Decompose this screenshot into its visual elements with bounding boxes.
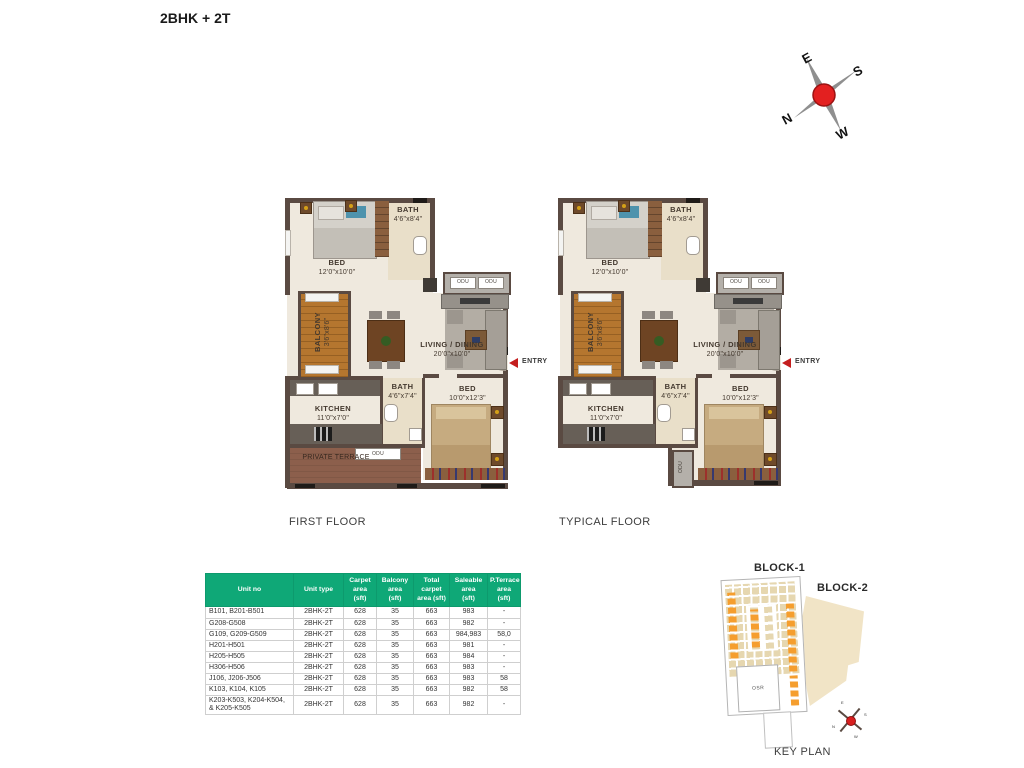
room-dim: 12'0"x10'0" — [592, 269, 629, 276]
living-label: LIVING / DINING 20'0"x10'0" — [403, 340, 501, 360]
wall — [457, 374, 508, 378]
room-dim: 10'0"x12'3" — [449, 395, 486, 402]
window — [285, 230, 291, 256]
table-cell: 2BHK-2T — [294, 640, 344, 651]
pillow — [318, 206, 344, 220]
lamp-icon — [349, 204, 353, 208]
compass-icon: E S N W — [772, 48, 884, 144]
lamp-icon — [768, 457, 772, 461]
window — [558, 230, 564, 256]
table-cell: 58,0 — [488, 629, 521, 640]
table-cell: 2BHK-2T — [294, 607, 344, 618]
block1-highlight — [790, 675, 800, 705]
table-row: G208-G5082BHK-2T62835663982- — [206, 618, 521, 629]
table-header: Unit noUnit typeCarpet area (sft)Balcony… — [206, 574, 521, 607]
lamp-icon — [304, 206, 308, 210]
odu-label: ODU — [450, 277, 476, 289]
table-cell: 663 — [414, 673, 450, 684]
column-header: Total carpet area (sft) — [414, 574, 450, 607]
table-cell: 35 — [377, 640, 414, 651]
balcony-dim: 3'6"x8'6" — [324, 318, 331, 347]
room-name: KITCHEN — [315, 404, 351, 413]
room-name: BED — [459, 384, 476, 393]
room-dim: 10'0"x12'3" — [722, 395, 759, 402]
kp-s-label: S — [864, 712, 867, 717]
bed2-furniture — [704, 404, 764, 472]
room-name: BED — [328, 258, 345, 267]
wall — [696, 374, 712, 378]
kitchen-counter — [563, 380, 653, 396]
plant-icon — [654, 336, 664, 346]
nightstand — [345, 200, 357, 212]
column-header: Balcony area (sft) — [377, 574, 414, 607]
block1-label: BLOCK-1 — [754, 562, 805, 574]
lamp-icon — [495, 457, 499, 461]
bath2-label: BATH 4'6"x7'4" — [380, 382, 425, 402]
table-cell: - — [488, 651, 521, 662]
table-row: J106, J206-J5062BHK-2T6283566398358 — [206, 673, 521, 684]
table-body: B101, B201-B5012BHK-2T62835663983-G208-G… — [206, 607, 521, 714]
wall-column — [481, 484, 505, 488]
balcony-name: BALCONY — [586, 312, 595, 352]
sink — [591, 383, 611, 395]
table-cell: 628 — [344, 618, 377, 629]
room-name: LIVING / DINING — [693, 340, 757, 349]
block1-highlight — [786, 603, 798, 671]
bath2-label: BATH 4'6"x7'4" — [653, 382, 698, 402]
chair — [660, 361, 673, 369]
bath1-label: BATH 4'6"x8'4" — [659, 205, 703, 225]
room-dim: 20'0"x10'0" — [434, 351, 471, 358]
block2-label: BLOCK-2 — [817, 582, 868, 594]
entry-arrow-icon — [509, 358, 518, 368]
block2-area — [798, 596, 864, 706]
tv-icon — [460, 298, 490, 304]
wall — [703, 198, 708, 278]
nightstand — [618, 200, 630, 212]
pillow — [709, 407, 759, 419]
table-cell: 663 — [414, 618, 450, 629]
table-cell: 35 — [377, 684, 414, 695]
bed2-label: BED 10'0"x12'3" — [430, 384, 505, 404]
typical-floor-caption: TYPICAL FLOOR — [559, 516, 651, 528]
table-row: H205-H5052BHK-2T62835663984- — [206, 651, 521, 662]
table-cell: 663 — [414, 607, 450, 618]
wall-column — [295, 484, 315, 488]
unit-area-table: Unit noUnit typeCarpet area (sft)Balcony… — [205, 573, 521, 715]
table-cell: 663 — [414, 662, 450, 673]
floorplan-first-floor: ODU ODU BALCONY 3'6"x8'6" — [285, 198, 510, 490]
table-row: H201-H5012BHK-2T62835663981- — [206, 640, 521, 651]
table-cell: 2BHK-2T — [294, 673, 344, 684]
compass-rose-icon: E S N W — [772, 48, 884, 144]
nightstand — [573, 202, 585, 214]
wardrobe — [698, 468, 778, 480]
table-cell: K103, K104, K105 — [206, 684, 294, 695]
balcony-label: BALCONY 3'6"x8'6" — [313, 287, 329, 377]
column-header: Saleable area (sft) — [450, 574, 488, 607]
wall-column — [754, 481, 778, 485]
sink — [318, 383, 338, 395]
room-dim: 20'0"x10'0" — [707, 351, 744, 358]
wall-column — [413, 198, 427, 203]
lamp-icon — [768, 410, 772, 414]
tv-icon — [733, 298, 763, 304]
table-cell: - — [488, 695, 521, 714]
terrace-label: PRIVATE TERRACE — [297, 454, 375, 463]
table-cell: 984 — [450, 651, 488, 662]
table-cell: 628 — [344, 695, 377, 714]
table-cell: 628 — [344, 673, 377, 684]
entry-arrow-icon — [782, 358, 791, 368]
armchair — [720, 310, 736, 324]
table-cell: - — [488, 607, 521, 618]
compass-center-icon — [846, 716, 856, 726]
bath1-label: BATH 4'6"x8'4" — [386, 205, 430, 225]
bed1-label: BED 12'0"x10'0" — [570, 258, 650, 278]
chair — [642, 361, 655, 369]
entry-label: ENTRY — [522, 358, 547, 365]
compass-w-label: W — [833, 123, 852, 142]
plant-icon — [381, 336, 391, 346]
nightstand — [764, 453, 777, 466]
odu-enclosure: ODU ODU — [716, 272, 784, 295]
table-cell: 2BHK-2T — [294, 618, 344, 629]
wall — [423, 374, 439, 378]
kitchen-counter — [290, 380, 380, 396]
table-cell: J106, J206-J506 — [206, 673, 294, 684]
table-cell: 35 — [377, 618, 414, 629]
tv-unit — [714, 294, 782, 309]
kp-e-label: E — [841, 700, 844, 705]
column-header: Unit type — [294, 574, 344, 607]
table-row: B101, B201-B5012BHK-2T62835663983- — [206, 607, 521, 618]
table-cell: H205-H505 — [206, 651, 294, 662]
table-row: K203-K503, K204-K504, & K205-K5052BHK-2T… — [206, 695, 521, 714]
table-cell: 58 — [488, 673, 521, 684]
table-cell: - — [488, 662, 521, 673]
room-name: KITCHEN — [588, 404, 624, 413]
table-cell: 628 — [344, 651, 377, 662]
table-cell: 35 — [377, 662, 414, 673]
table-cell: 2BHK-2T — [294, 684, 344, 695]
sink — [569, 383, 587, 395]
room-dim: 11'0"x7'0" — [590, 415, 622, 422]
table-cell: 628 — [344, 640, 377, 651]
compass-s-label: S — [850, 62, 865, 79]
table-cell: 2BHK-2T — [294, 651, 344, 662]
table-cell: 982 — [450, 618, 488, 629]
wall — [430, 198, 435, 278]
room-dim: 12'0"x10'0" — [319, 269, 356, 276]
access-road — [763, 711, 793, 748]
table-cell: 663 — [414, 629, 450, 640]
basin — [682, 428, 695, 441]
kitchen-counter — [563, 424, 655, 444]
blanket — [314, 228, 376, 258]
table-cell: B101, B201-B501 — [206, 607, 294, 618]
odu-label: ODU — [723, 277, 749, 289]
kitchen-label: KITCHEN 11'0"x7'0" — [293, 404, 373, 424]
compass-n-label: N — [779, 110, 794, 128]
table-cell: G208-G508 — [206, 618, 294, 629]
table-cell: 663 — [414, 651, 450, 662]
compass-e-label: E — [799, 49, 814, 66]
odu-enclosure: ODU ODU — [443, 272, 511, 295]
odu-side-label: ODU — [677, 454, 685, 480]
key-plan: BLOCK-1 BLOCK-2 OSR E S N W KEY PLAN — [712, 560, 892, 760]
table-cell: 58 — [488, 684, 521, 695]
room-name: BATH — [665, 382, 687, 391]
dining-table — [367, 320, 405, 362]
table-cell: 982 — [450, 695, 488, 714]
bed1-label: BED 12'0"x10'0" — [297, 258, 377, 278]
chair — [369, 361, 382, 369]
pillow — [436, 407, 486, 419]
table-cell: 35 — [377, 673, 414, 684]
wall-column — [686, 198, 700, 203]
table-cell: H306-H506 — [206, 662, 294, 673]
table-cell: 981 — [450, 640, 488, 651]
sink — [296, 383, 314, 395]
balcony-label: BALCONY 3'6"x8'6" — [586, 287, 602, 377]
stove — [314, 427, 332, 441]
room-name: BATH — [392, 382, 414, 391]
column-header: Unit no — [206, 574, 294, 607]
balcony-dim: 3'6"x8'6" — [597, 318, 604, 347]
room-dim: 4'6"x7'4" — [661, 393, 690, 400]
table-row: K103, K104, K1052BHK-2T6283566398258 — [206, 684, 521, 695]
room-name: BED — [601, 258, 618, 267]
toilet-fixture — [384, 404, 398, 422]
nightstand — [491, 453, 504, 466]
room-dim: 4'6"x7'4" — [388, 393, 417, 400]
table-cell: 983 — [450, 673, 488, 684]
block1-parcel: OSR — [720, 576, 807, 716]
block1-buildings — [725, 581, 800, 677]
armchair — [447, 310, 463, 324]
column-header: Carpet area (sft) — [344, 574, 377, 607]
balcony-name: BALCONY — [313, 312, 322, 352]
table-cell: 628 — [344, 662, 377, 673]
nightstand — [491, 406, 504, 419]
room-name: BATH — [397, 205, 419, 214]
table-cell: 663 — [414, 684, 450, 695]
table-cell: 983 — [450, 607, 488, 618]
bed2-label: BED 10'0"x12'3" — [703, 384, 778, 404]
lamp-icon — [622, 204, 626, 208]
chair — [660, 311, 673, 319]
room-name: BATH — [670, 205, 692, 214]
dining-table — [640, 320, 678, 362]
stove — [587, 427, 605, 441]
living-label: LIVING / DINING 20'0"x10'0" — [676, 340, 774, 360]
basin — [409, 428, 422, 441]
odu-label: ODU — [751, 277, 777, 289]
nightstand — [300, 202, 312, 214]
odu-label: ODU — [478, 277, 504, 289]
table-cell: 2BHK-2T — [294, 629, 344, 640]
table-cell: 2BHK-2T — [294, 662, 344, 673]
osr-area: OSR — [736, 664, 780, 712]
keyplan-caption: KEY PLAN — [774, 746, 831, 758]
wall-column — [397, 484, 417, 488]
room-name: LIVING / DINING — [420, 340, 484, 349]
room-dim: 4'6"x8'4" — [667, 216, 696, 223]
table-cell: K203-K503, K204-K504, & K205-K505 — [206, 695, 294, 714]
table-cell: 2BHK-2T — [294, 695, 344, 714]
table-cell: 663 — [414, 695, 450, 714]
tv-unit — [441, 294, 509, 309]
table-cell: 628 — [344, 684, 377, 695]
table-header-row: Unit noUnit typeCarpet area (sft)Balcony… — [206, 574, 521, 607]
chair — [387, 311, 400, 319]
chair — [369, 311, 382, 319]
room-dim: 11'0"x7'0" — [317, 415, 349, 422]
page-title: 2BHK + 2T — [160, 10, 230, 26]
kitchen-label: KITCHEN 11'0"x7'0" — [566, 404, 646, 424]
toilet-fixture — [686, 236, 700, 255]
wall — [730, 374, 781, 378]
room-name: BED — [732, 384, 749, 393]
kp-w-label: W — [854, 734, 858, 739]
table-cell: 628 — [344, 629, 377, 640]
wardrobe — [425, 468, 505, 480]
first-floor-caption: FIRST FLOOR — [289, 516, 366, 528]
table-cell: 35 — [377, 651, 414, 662]
table-cell: - — [488, 640, 521, 651]
table-cell: 35 — [377, 607, 414, 618]
table-row: H306-H5062BHK-2T62835663983- — [206, 662, 521, 673]
column-header: P.Terrace area (sft) — [488, 574, 521, 607]
toilet-fixture — [657, 404, 671, 422]
table-cell: 663 — [414, 640, 450, 651]
toilet-fixture — [413, 236, 427, 255]
chair — [642, 311, 655, 319]
kp-n-label: N — [832, 724, 835, 729]
brochure-page: 2BHK + 2T E S N W — [0, 0, 1024, 768]
pillow — [591, 206, 617, 220]
table-cell: 982 — [450, 684, 488, 695]
table-row: G109, G209-G5092BHK-2T62835663984,98358,… — [206, 629, 521, 640]
table-cell: 984,983 — [450, 629, 488, 640]
blanket — [587, 228, 649, 258]
nightstand — [764, 406, 777, 419]
wall — [558, 444, 698, 448]
kitchen-counter — [290, 424, 382, 444]
room-dim: 4'6"x8'4" — [394, 216, 423, 223]
entry-label: ENTRY — [795, 358, 820, 365]
table-cell: H201-H501 — [206, 640, 294, 651]
chair — [387, 361, 400, 369]
keyplan-compass-icon: E S N W — [832, 702, 868, 738]
shaft — [423, 278, 437, 292]
table-cell: - — [488, 618, 521, 629]
table-cell: 35 — [377, 629, 414, 640]
table-cell: G109, G209-G509 — [206, 629, 294, 640]
lamp-icon — [495, 410, 499, 414]
shaft — [696, 278, 710, 292]
floorplan-typical-floor: ODU ODU ODU BALCONY 3'6"x8'6" — [558, 198, 783, 490]
table-cell: 983 — [450, 662, 488, 673]
lamp-icon — [577, 206, 581, 210]
table-cell: 35 — [377, 695, 414, 714]
table-cell: 628 — [344, 607, 377, 618]
bed2-furniture — [431, 404, 491, 472]
block1-highlight — [727, 592, 738, 658]
